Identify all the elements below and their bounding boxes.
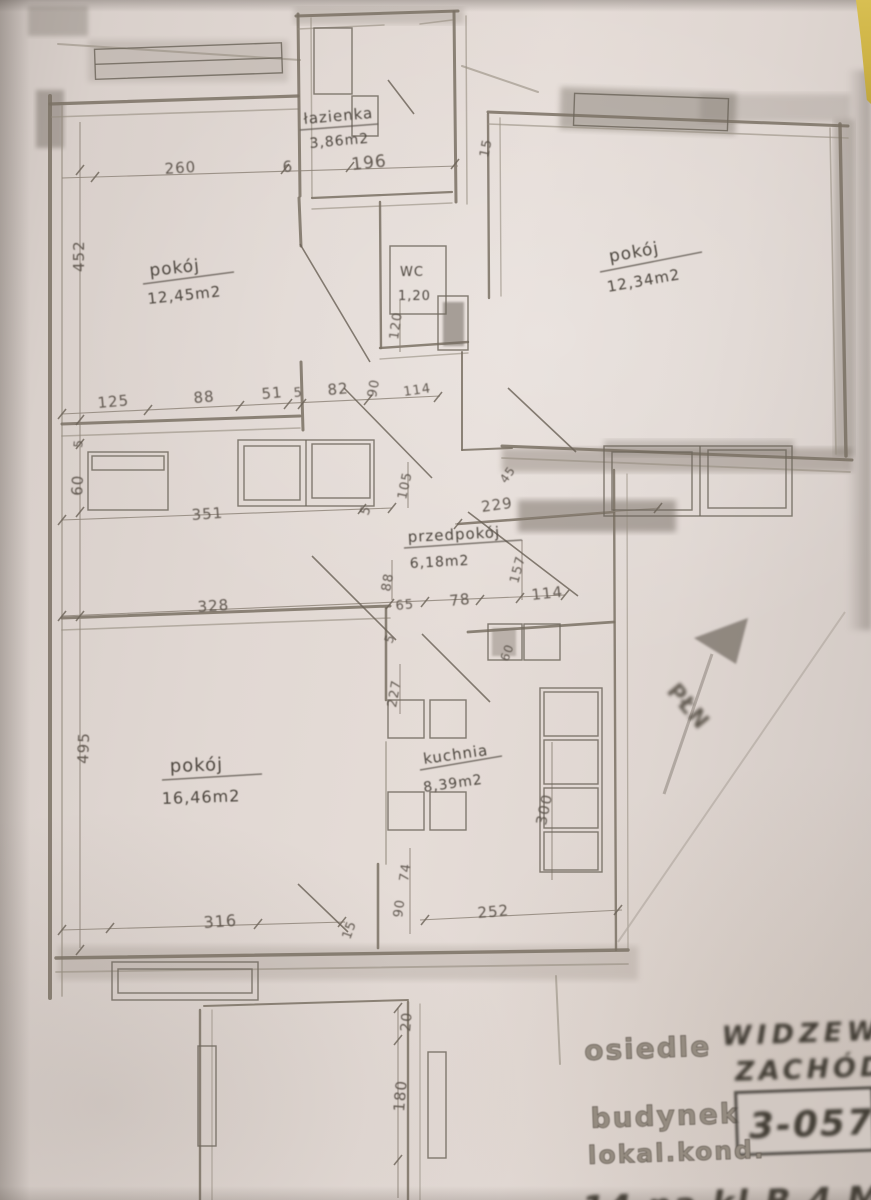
dim-157: 157 [507,554,529,585]
dim-15-top: 15 [477,138,496,159]
dim-51: 51 [261,383,284,403]
bath-tub [314,28,352,94]
room-pokoj3-area: 16,46m2 [161,786,240,808]
dim-120-wc: 120 [387,311,406,341]
kitchen-counter-right [540,688,602,872]
lokal-value-partial: 14 na kl.B.4 M.42 [581,1176,871,1200]
dim-495: 495 [74,732,93,764]
title-block: osiedle WIDZEW ZACHÓD budynek 3-057 loka… [575,1013,871,1200]
dim-300: 300 [532,792,556,827]
dim-5-left: 5 [71,438,86,448]
dim-316: 316 [203,911,238,932]
room-pokoj2-area: 12,34m2 [606,265,682,296]
room-pokoj2-name: pokój [607,238,660,266]
wardrobe-left [88,452,168,510]
room-pokoj3-name: pokój [169,754,223,777]
room-lazienka-area: 3,86m2 [309,131,370,152]
dim-65: 65 [395,597,415,614]
room-wc-name: WC [400,265,424,280]
window-bar-lower-mid [428,1052,446,1158]
dim-180: 180 [390,1079,411,1112]
dim-78: 78 [449,590,472,610]
dim-328: 328 [197,596,230,616]
north-arrow: PŁN [661,618,748,794]
dim-88-top: 88 [193,387,216,407]
dim-60-left: 60 [68,474,87,496]
dim-125: 125 [97,391,130,412]
dim-88-low: 88 [379,572,397,593]
dim-74: 74 [397,862,414,882]
dim-114-low: 114 [531,583,564,604]
room-lazienka-name: łazienka [303,104,374,128]
paper-smudges [28,6,854,980]
dim-5-low: 5 [382,632,398,645]
dim-6: 6 [282,157,294,176]
fixtures-layer [88,28,792,1158]
floorplan-drawing: łazienka 3,86m2 pokój 12,45m2 pokój 12,3… [0,0,871,1200]
dim-227: 227 [385,679,405,709]
dim-229: 229 [480,494,514,516]
dim-90-mid: 90 [365,378,383,399]
dim-82: 82 [327,379,350,399]
room-wc-area: 1,20 [398,289,431,304]
budynek-label: budynek [590,1097,741,1135]
dim-5-mid: 5 [293,385,304,401]
dim-351: 351 [191,504,224,524]
dim-196: 196 [350,151,387,175]
wardrobe-middle [238,440,374,506]
osiedle-value-line2: ZACHÓD [733,1050,871,1087]
dim-260: 260 [164,158,197,178]
budynek-value: 3-057 [748,1102,871,1147]
dim-114-mid: 114 [402,381,432,400]
room-pokoj1-area: 12,45m2 [147,282,223,308]
lokal-label: lokal.kond. [587,1135,766,1170]
north-arrow-head [694,618,748,664]
dim-452: 452 [70,240,88,272]
room-przedpokoj-area: 6,18m2 [409,553,469,572]
dim-90-bottom: 90 [391,898,408,918]
dim-20: 20 [398,1011,416,1032]
dim-105: 105 [395,470,415,500]
wc-toilet [438,296,468,350]
paper-crease [618,612,845,942]
dim-252: 252 [477,901,510,922]
osiedle-label: osiedle [584,1030,712,1067]
floorplan-photo: łazienka 3,86m2 pokój 12,45m2 pokój 12,3… [0,0,871,1200]
osiedle-value-line1: WIDZEW [721,1016,871,1053]
